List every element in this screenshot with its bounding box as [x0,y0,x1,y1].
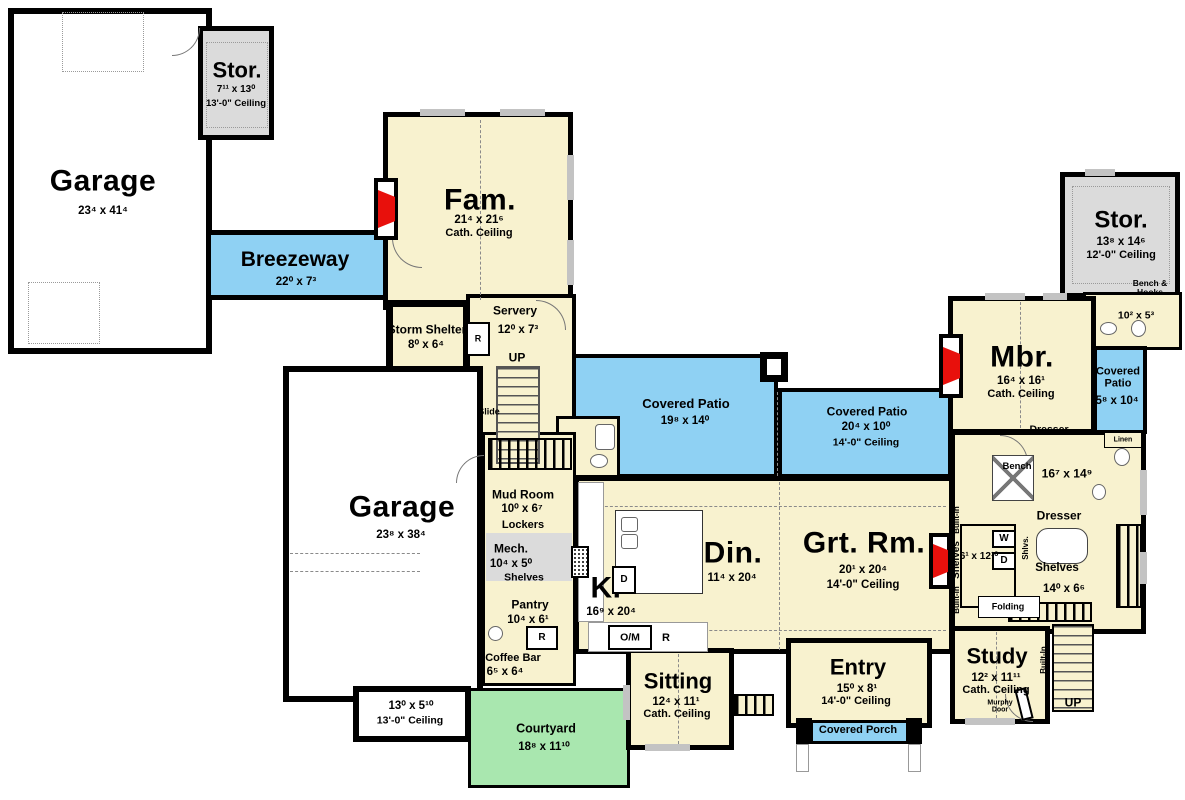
garage-w-dims: 23⁸ x 38⁴ [376,529,426,541]
courtyard-name: Courtyard [516,722,576,735]
sitting-window-bottom [645,744,690,751]
fam-window-right-1 [567,155,574,200]
servery-name: Servery [493,305,537,318]
storm-shelter-name: Storm Shelter [388,324,467,337]
grt-rm-name: Grt. Rm. [803,527,925,559]
master-tub [1036,528,1088,564]
bench-label: Bench [1002,462,1031,472]
mech-dims: 10⁴ x 5⁰ [490,558,532,570]
entry-name: Entry [830,655,886,678]
mbath-window-right-1 [1140,470,1147,515]
garage-w-track-1 [290,553,420,554]
pantry-dims: 10⁴ x 6¹ [507,614,549,626]
built-in-label-bottom: Built-In [953,586,961,614]
stor-ne-dims: 13⁸ x 14⁶ [1096,236,1145,248]
mud-room-dims: 10⁰ x 6⁷ [501,503,542,515]
mbr-dims: 16⁴ x 16¹ [997,375,1045,387]
storm-shelter-dims: 8⁰ x 6⁴ [408,339,444,351]
range-hood-column [571,546,589,578]
sitting-dims: 12⁴ x 11¹ [652,696,699,708]
breezeway-name: Breezeway [241,249,350,271]
stor-ne-ceiling: 12'-0" Ceiling [1086,250,1156,262]
patio-center-ceiling: 14'-0" Ceiling [833,437,899,448]
study-name: Study [966,644,1027,667]
garage-bay-dims: 13⁰ x 5¹⁰ [388,700,433,712]
study-window-bottom [965,718,1015,725]
dresser-label-2: Dresser [1037,510,1082,523]
room-patio-east [1093,346,1147,434]
grt-rm-ceiling: 14'-0" Ceiling [827,579,900,591]
bath-ne-dims: 10² x 5³ [1118,310,1154,321]
kitchen-dims: 16⁹ x 20⁴ [586,606,636,618]
breezeway-dims: 22⁰ x 7³ [276,276,316,288]
coffee-bar-sink [488,626,503,641]
linen-label: Linen [1114,436,1133,443]
porch-pier-right [906,718,922,744]
dresser-label-1: Dresser [1029,424,1068,435]
mech-name: Mech. [494,543,528,556]
coffee-bar-dims: 6⁵ x 6⁴ [487,666,524,678]
dryer-label: D [1000,556,1007,567]
porch-pier-left [796,718,812,744]
stor-nw-name: Stor. [213,58,262,81]
fam-window-top-2 [500,109,545,116]
study-dims: 12² x 11¹¹ [971,672,1020,684]
built-in-label-study: Built-In [1040,646,1048,674]
mbath-dims: 16⁷ x 14⁹ [1042,468,1093,481]
patio-center-dims: 20⁴ x 10⁰ [842,421,891,433]
stor-nw-dims: 7¹¹ x 13⁰ [217,85,255,96]
coffee-bar-name: Coffee Bar [485,653,541,665]
porch-column-left [796,744,809,772]
mbr-ceiling: Cath. Ceiling [987,389,1054,401]
wic-dims: 14⁰ x 6⁶ [1043,583,1085,595]
patio-east-dims: 5⁸ x 10⁴ [1095,395,1138,407]
garage-nw-name: Garage [50,165,156,197]
ne-bath-sink [1100,322,1117,335]
mud-room-name: Mud Room [492,489,554,502]
garage-w-name: Garage [349,491,455,523]
folding-label: Folding [992,602,1025,611]
floor-plan: Garage 23⁴ x 41⁴ Stor. 7¹¹ x 13⁰ 13'-0" … [0,0,1185,800]
wic-shelves-label: Shelves [1035,562,1078,574]
oven-microwave-label: O/M [620,632,640,643]
din-dims: 11⁴ x 20⁴ [707,572,756,584]
mbr-window-top-2 [1043,293,1067,300]
servery-fridge-label: R [475,334,482,343]
laundry-dims: 6¹ x 12¹⁰ [960,552,998,563]
garage-nw-dims: 23⁴ x 41⁴ [78,205,128,217]
lockers-label: Lockers [502,520,544,532]
wc-toilet-2 [1092,484,1106,500]
grt-rm-dims: 20¹ x 20⁴ [839,564,887,576]
mudroom-lockers-hatch [488,438,572,470]
bench-hooks-label: Bench & Hooks [1126,279,1174,297]
garage-w-track-2 [290,571,420,572]
din-great-divider [779,482,780,650]
built-in-label-top: Built-In [953,506,961,534]
covered-porch-label: Covered Porch [819,725,897,737]
mbr-window-top-1 [985,293,1025,300]
wardrobe-hatch-right [1116,524,1142,608]
fam-ceiling: Cath. Ceiling [445,228,512,240]
stoop-steps-hatch [734,694,774,716]
garage-bay-ceiling: 13'-0" Ceiling [377,715,443,726]
sitting-ceiling: Cath. Ceiling [643,709,710,721]
entry-dims: 15⁰ x 8¹ [837,683,877,695]
room-courtyard [468,688,630,788]
mbr-name: Mbr. [990,341,1054,373]
stor-nw-ceiling: 13'-0" Ceiling [206,99,266,109]
great-rm-soffit-top [590,506,946,507]
fam-dims: 21⁴ x 21⁶ [454,214,503,226]
fam-window-right-2 [567,240,574,285]
shelves-wall-label: Shelves [952,541,963,579]
fam-window-top-1 [420,109,465,116]
porch-column-right [908,744,921,772]
stor-ne-name: Stor. [1094,207,1147,232]
patio-east-name: Covered Patio [1088,366,1148,389]
main-stairs-up-label: UP [509,352,526,365]
rear-stairs-up-label: UP [1065,697,1082,710]
ne-bath-toilet [1131,320,1146,337]
shelves-label-2: Shelves [504,572,544,583]
sitting-name: Sitting [644,669,712,692]
patio-divider [777,392,778,476]
garage-nw-door-outline [62,12,144,72]
washer-label: W [999,534,1008,545]
island-sink [621,517,638,532]
wc-toilet [1114,448,1130,466]
patio-bath-sink [595,424,615,450]
courtyard-dims: 18⁸ x 11¹⁰ [518,741,570,753]
fam-name: Fam. [444,184,516,216]
patio-west-dims: 19⁸ x 14⁰ [661,415,709,427]
stor-ne-window-top [1085,169,1115,176]
murphy-door-label: Murphy Door [979,700,1021,715]
shlvs-label: Shlvs. [1022,536,1030,560]
din-name: Din. [704,537,763,569]
slide-label: Slide [478,407,500,416]
study-ceiling: Cath. Ceiling [962,685,1029,697]
entry-ceiling: 14'-0" Ceiling [821,696,891,708]
pantry-name: Pantry [511,599,548,612]
chimney [760,352,788,382]
patio-west-name: Covered Patio [642,397,729,411]
servery-dims: 12⁰ x 7³ [498,324,538,336]
patio-center-name: Covered Patio [827,406,908,419]
mbath-window-right-2 [1140,552,1147,584]
garage-nw-door-outline-2 [28,282,100,344]
pantry-fridge-label: R [538,633,545,644]
kitchen-name: K. [591,572,622,604]
sitting-window-left [623,685,630,720]
patio-bath-toilet [590,454,608,468]
dishwasher-label: D [620,575,627,586]
island-sink-2 [621,534,638,549]
range-label: R [662,633,670,645]
